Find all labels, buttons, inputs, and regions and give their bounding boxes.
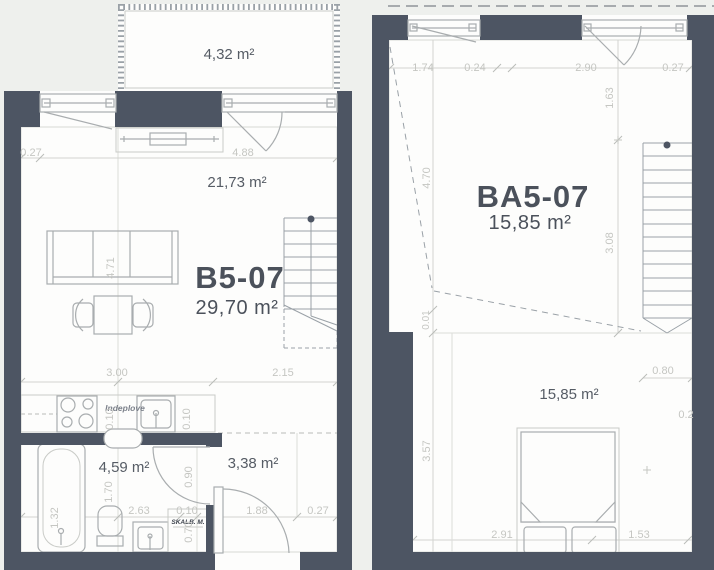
- unit-area-label: 29,70 m²: [196, 297, 279, 319]
- dim-label: 2.91: [491, 529, 512, 541]
- dim-label: 3.00: [106, 367, 127, 379]
- stair-start-dot: [664, 142, 671, 149]
- dim-label: 1.32: [49, 507, 61, 528]
- dim-label: 0.2: [678, 409, 693, 421]
- left-unit-plan: 4,32 m²: [4, 4, 352, 570]
- dim-label: 0.27: [307, 505, 328, 517]
- dim-label: 4.88: [232, 147, 253, 159]
- dim-label: 0.10: [181, 408, 193, 429]
- dim-label: 0.27: [20, 147, 41, 159]
- dim-label: 4.70: [421, 167, 433, 188]
- entry-area-label: 3,38 m²: [228, 455, 279, 472]
- right-unit-plan: 1.74 0.24 2.90 0.27 1.63 4.70 BA5-07 15,…: [372, 6, 714, 570]
- dim-label: 2.15: [272, 367, 293, 379]
- dim-label: 2.63: [128, 505, 149, 517]
- right-unit-floor: [372, 15, 714, 570]
- dim-label: 1.70: [103, 481, 115, 502]
- dim-label: 1.63: [604, 87, 616, 108]
- balcony-area-label: 4,32 m²: [204, 46, 255, 63]
- dim-label: 1.88: [246, 505, 267, 517]
- balcony: 4,32 m²: [118, 4, 340, 91]
- dim-label: 0.80: [652, 365, 673, 377]
- dim-label: 3.08: [604, 232, 616, 253]
- dim-label: 0.24: [464, 62, 485, 74]
- dim-label: 4.71: [105, 257, 117, 278]
- dim-label: 0.90: [183, 466, 195, 487]
- living-area-label: 21,73 m²: [207, 174, 266, 191]
- dim-label: 1.74: [412, 62, 433, 74]
- room-area-label: 15,85 m²: [539, 386, 598, 403]
- dim-label: 1.53: [628, 529, 649, 541]
- bathtub: [38, 444, 85, 552]
- dim-label: 0.01: [421, 310, 432, 330]
- unit-id-label: B5-07: [195, 260, 284, 295]
- dim-label: 0.27: [662, 62, 683, 74]
- floor-plan-canvas: 4,32 m²: [0, 0, 714, 570]
- unit-area-label: 15,85 m²: [489, 212, 572, 234]
- dim-label: 2.90: [575, 62, 596, 74]
- dim-label: 0.10: [176, 505, 197, 517]
- dim-label: 0.10: [104, 408, 116, 429]
- floor-plan-drawing: 4,32 m²: [0, 0, 714, 570]
- wall-niche: [104, 429, 142, 448]
- unit-id-label: BA5-07: [477, 179, 590, 214]
- bath-area-label: 4,59 m²: [99, 459, 150, 476]
- dim-label: 0.70: [183, 521, 195, 542]
- dim-label: 3.57: [421, 440, 433, 461]
- stair-start-dot: [308, 216, 315, 223]
